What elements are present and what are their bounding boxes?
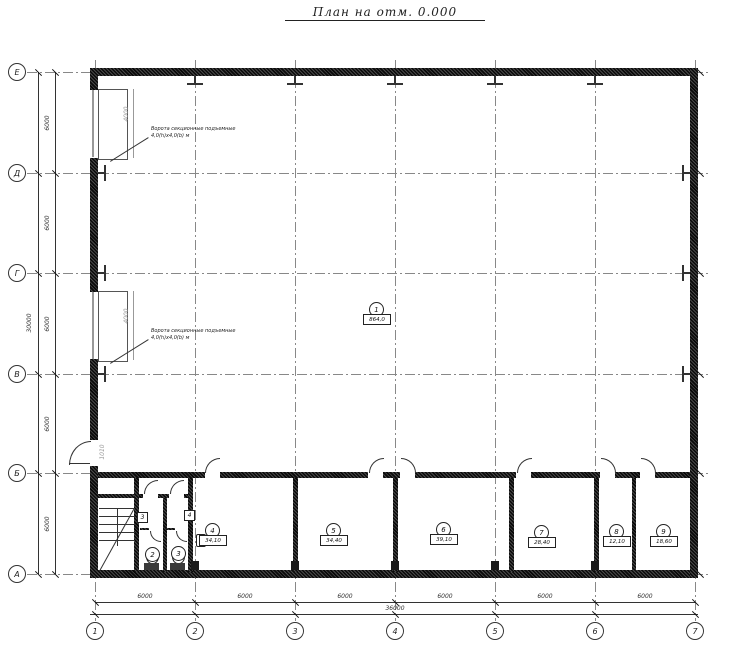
column-mark [187,83,203,85]
room-area: 39,10 [430,534,458,545]
dimension-label: 6000 [525,593,565,601]
dim-line-left-total [38,72,39,574]
door-arc [144,480,158,494]
column-pier [291,561,299,570]
wall-segment [594,478,599,572]
column-mark [682,265,684,281]
row-bubble-А: А [8,565,26,583]
dimension-label: 6000 [44,509,52,539]
gate-panel [92,90,94,157]
wall-opening [90,440,98,466]
gate-dim-label: 4000 [123,301,131,331]
dimension-label-total: 36000 [375,605,415,613]
gate-dim-label: 4000 [123,99,131,129]
dimension-label: 6000 [44,108,52,138]
gate-note-line2: 4,0(h)х4,0(b) м [151,133,271,139]
column-mark [683,373,690,375]
gate-note-line1: Ворота секционные подъемные [151,126,271,132]
column-mark [294,76,296,83]
wall-segment [140,528,149,530]
col-bubble-2: 2 [186,622,204,640]
room-area: 864,0 [363,314,391,325]
door-arc [517,458,532,473]
wall-segment [393,478,398,572]
dimension-label: 6000 [125,593,165,601]
column-mark [594,76,596,83]
wall-segment [293,478,298,572]
grid-line-row-Д [27,173,710,174]
dimension-label: 6000 [425,593,465,601]
col-bubble-4: 4 [386,622,404,640]
column-mark [104,366,106,382]
room-area: 34,40 [320,535,348,546]
wall-segment [166,528,175,530]
room-area: 12,10 [603,536,631,547]
toilet-icon [170,563,185,570]
col-bubble-7: 7 [686,622,704,640]
door-tag: 4 [184,510,195,521]
dimension-label: 6000 [325,593,365,601]
column-mark [587,83,603,85]
wall-opening [169,494,184,498]
row-bubble-Д: Д [8,164,26,182]
wall-segment [509,478,514,572]
wall-segment [188,478,193,572]
door-arc [69,441,91,465]
column-mark [682,366,684,382]
dimension-label-total: 30000 [26,309,34,337]
dimension-label: 6000 [44,208,52,238]
dimension-label: 6000 [44,309,52,339]
door-tag: 3 [137,512,148,523]
column-pier [491,561,499,570]
wall-segment [632,478,636,572]
grid-line-row-В [27,374,710,375]
door-arc [176,531,187,542]
room-number: 2 [145,547,160,562]
door-arc [641,458,656,473]
wall-segment [90,68,698,76]
dim-line-left-segments [55,72,56,574]
column-mark [104,165,106,181]
grid-line-row-Г [27,273,710,274]
column-mark [387,83,403,85]
door-arc [205,458,220,473]
room-area: 18,60 [650,536,678,547]
door-arc [401,458,416,473]
row-bubble-В: В [8,365,26,383]
door-arc [150,531,161,542]
column-mark [683,272,690,274]
column-mark [104,265,106,281]
row-bubble-Г: Г [8,264,26,282]
grid-line-column-5 [495,60,496,621]
col-bubble-1: 1 [86,622,104,640]
toilet-icon [144,563,159,570]
door-arc [369,458,384,473]
gate-note-line1: Ворота секционные подъемные [151,328,271,334]
gate-panel [92,292,94,359]
column-mark [194,76,196,83]
wall-segment [163,498,167,572]
column-mark [394,76,396,83]
column-pier [191,561,199,570]
col-bubble-5: 5 [486,622,504,640]
door-arc [601,458,616,473]
column-mark [487,83,503,85]
row-bubble-Б: Б [8,464,26,482]
plan-title: План на отм. 0.000 [285,5,485,21]
wall-segment [690,68,698,578]
column-mark [683,172,690,174]
room-area: 34,10 [199,535,227,546]
column-pier [391,561,399,570]
dimension-label: 6000 [44,409,52,439]
door-arc [170,480,184,494]
col-bubble-6: 6 [586,622,604,640]
dimension-label: 6000 [625,593,665,601]
column-mark [682,165,684,181]
floor-plan-drawing: План на отм. 0.000 4000Ворота секционные… [0,0,734,649]
room-area: 28,40 [528,537,556,548]
col-bubble-3: 3 [286,622,304,640]
column-mark [287,83,303,85]
wall-opening [143,494,158,498]
dimension-label: 6000 [225,593,265,601]
room-number: 3 [171,546,186,561]
door-dim-label: 1010 [99,437,107,467]
row-bubble-Е: Е [8,63,26,81]
column-pier [591,561,599,570]
gate-note-line2: 4,0(h)х4,0(b) м [151,335,271,341]
door-leaf [69,463,90,464]
column-mark [494,76,496,83]
